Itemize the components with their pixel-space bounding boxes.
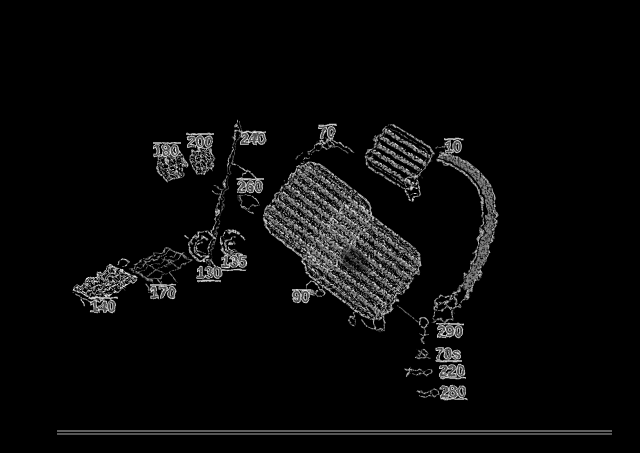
svg-text:130: 130 [196,265,222,282]
svg-text:170: 170 [150,285,176,302]
svg-text:70: 70 [318,125,335,142]
svg-text:200: 200 [187,134,213,151]
svg-text:140: 140 [90,299,116,316]
svg-text:180: 180 [153,143,179,160]
svg-text:290: 290 [437,324,463,341]
svg-text:90: 90 [292,289,309,306]
svg-text:240: 240 [240,131,266,148]
svg-text:10: 10 [444,139,461,156]
svg-text:260: 260 [237,179,263,196]
svg-text:135: 135 [221,254,247,271]
